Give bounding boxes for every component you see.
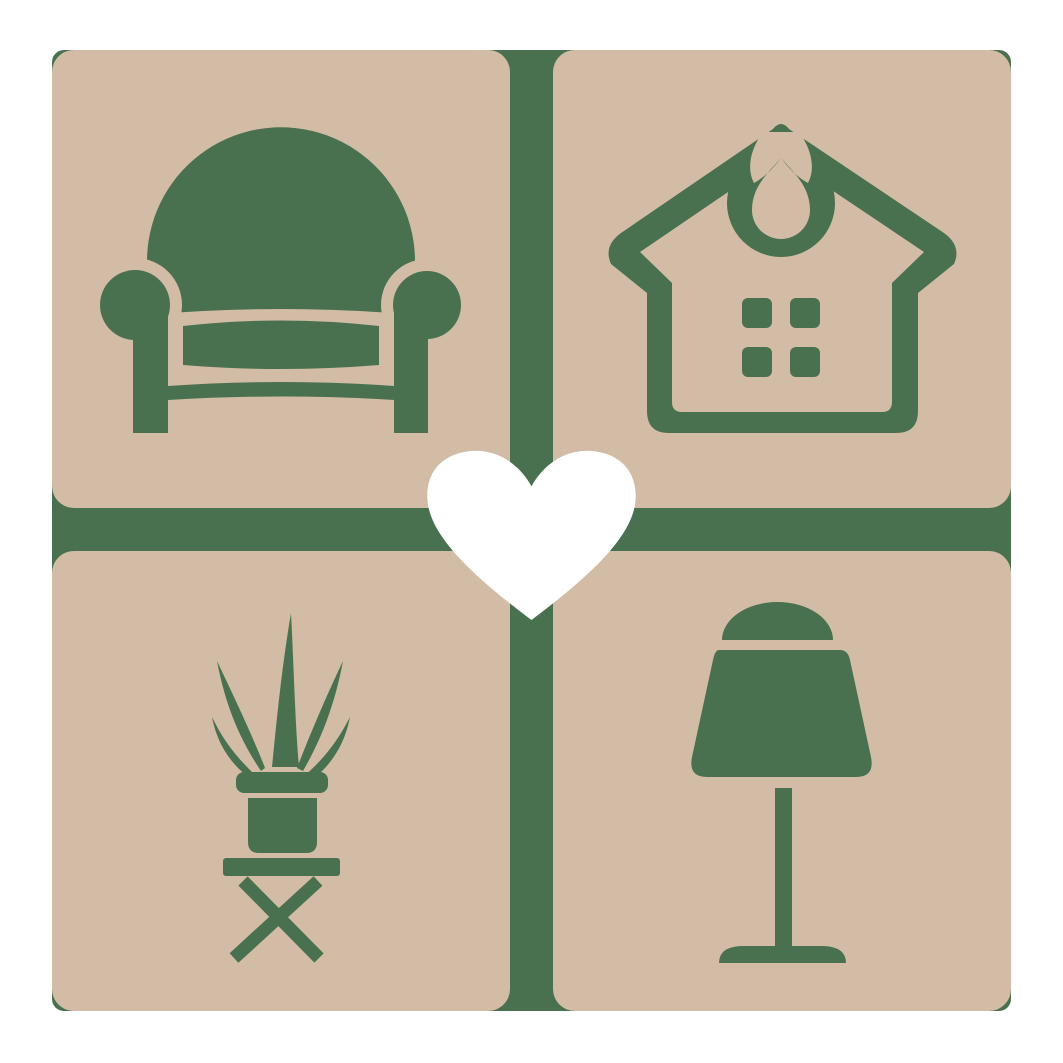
tile-armchair: [52, 50, 510, 508]
armchair-icon: [52, 50, 510, 508]
logo-canvas: [0, 0, 1063, 1063]
tile-house: [553, 50, 1011, 508]
house-icon: [553, 50, 1011, 508]
heart-icon: [423, 447, 640, 622]
